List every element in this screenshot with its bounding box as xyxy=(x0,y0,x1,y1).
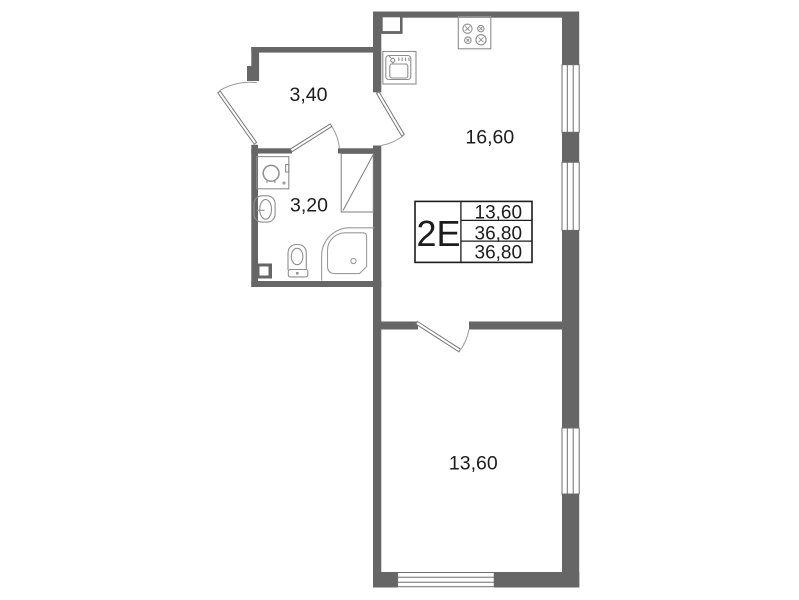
svg-text:3,20: 3,20 xyxy=(290,195,328,217)
svg-text:16,60: 16,60 xyxy=(465,127,514,149)
svg-text:13,60: 13,60 xyxy=(475,203,523,224)
svg-text:3,40: 3,40 xyxy=(290,84,328,106)
svg-text:13,60: 13,60 xyxy=(449,453,498,475)
svg-text:2Е: 2Е xyxy=(416,213,460,254)
svg-text:36,80: 36,80 xyxy=(475,242,523,263)
svg-text:36,80: 36,80 xyxy=(475,224,523,245)
